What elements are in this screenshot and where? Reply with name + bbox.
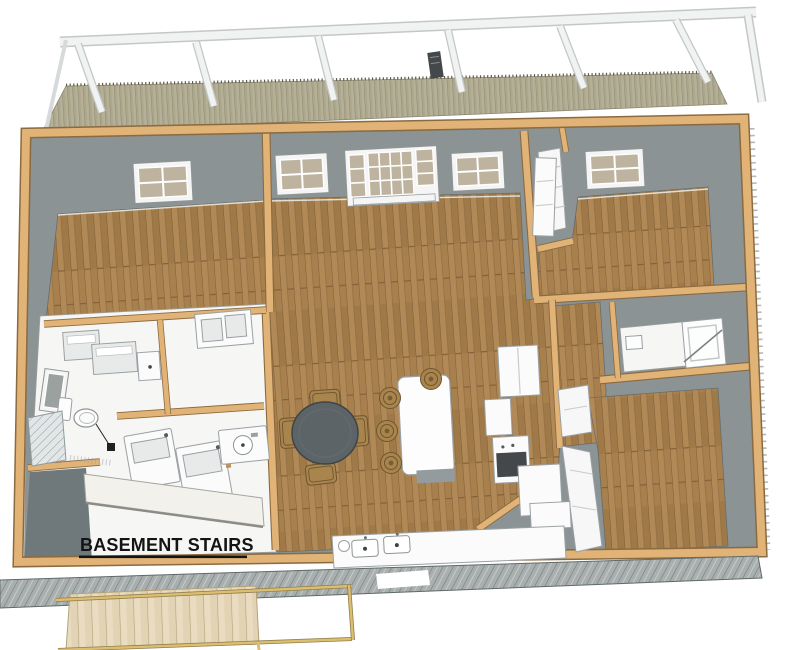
dining-table: [292, 402, 358, 464]
kitchen-counter: [484, 398, 512, 435]
closet-door: [533, 158, 557, 237]
stool: [421, 369, 442, 390]
mudroom-cabinet: [195, 310, 254, 349]
island-base: [416, 469, 455, 484]
floor-bedroom-left: [46, 200, 269, 320]
bath-sink: [137, 351, 161, 380]
stool: [381, 453, 402, 474]
floor-plan-render: BASEMENT STAIRS: [0, 0, 800, 650]
window-bedroom-left: [133, 161, 193, 204]
kitchen-island: [397, 375, 455, 485]
bath-right-sink: [626, 335, 643, 349]
shower-floor-hatch: [28, 411, 66, 466]
floor-bedroom-bottom-right: [588, 388, 728, 552]
stool: [377, 421, 398, 442]
island-top: [397, 375, 454, 476]
window-bedroom-top-right: [585, 149, 645, 190]
french-door-unit: [345, 146, 440, 207]
pergola-beam: [60, 12, 756, 42]
floor-plan-3d-view: BASEMENT STAIRS: [0, 0, 800, 650]
pergola-right-post: [748, 15, 762, 102]
window-great-room-left: [275, 153, 329, 196]
bathtub: [682, 318, 726, 368]
floor-drain: [107, 443, 115, 451]
grill: [427, 51, 443, 79]
basement-stairs-underline: [79, 556, 247, 559]
vanity-faucet: [251, 432, 258, 437]
exterior-base: [0, 556, 762, 650]
counter-plate: [339, 541, 350, 552]
stool: [380, 388, 401, 409]
basement-stairs-label: BASEMENT STAIRS: [80, 535, 254, 555]
dining-chair: [305, 462, 337, 486]
lower-cabinet: [530, 501, 571, 529]
window-great-room-right: [451, 151, 505, 192]
hall-bathroom-door: [558, 385, 592, 437]
